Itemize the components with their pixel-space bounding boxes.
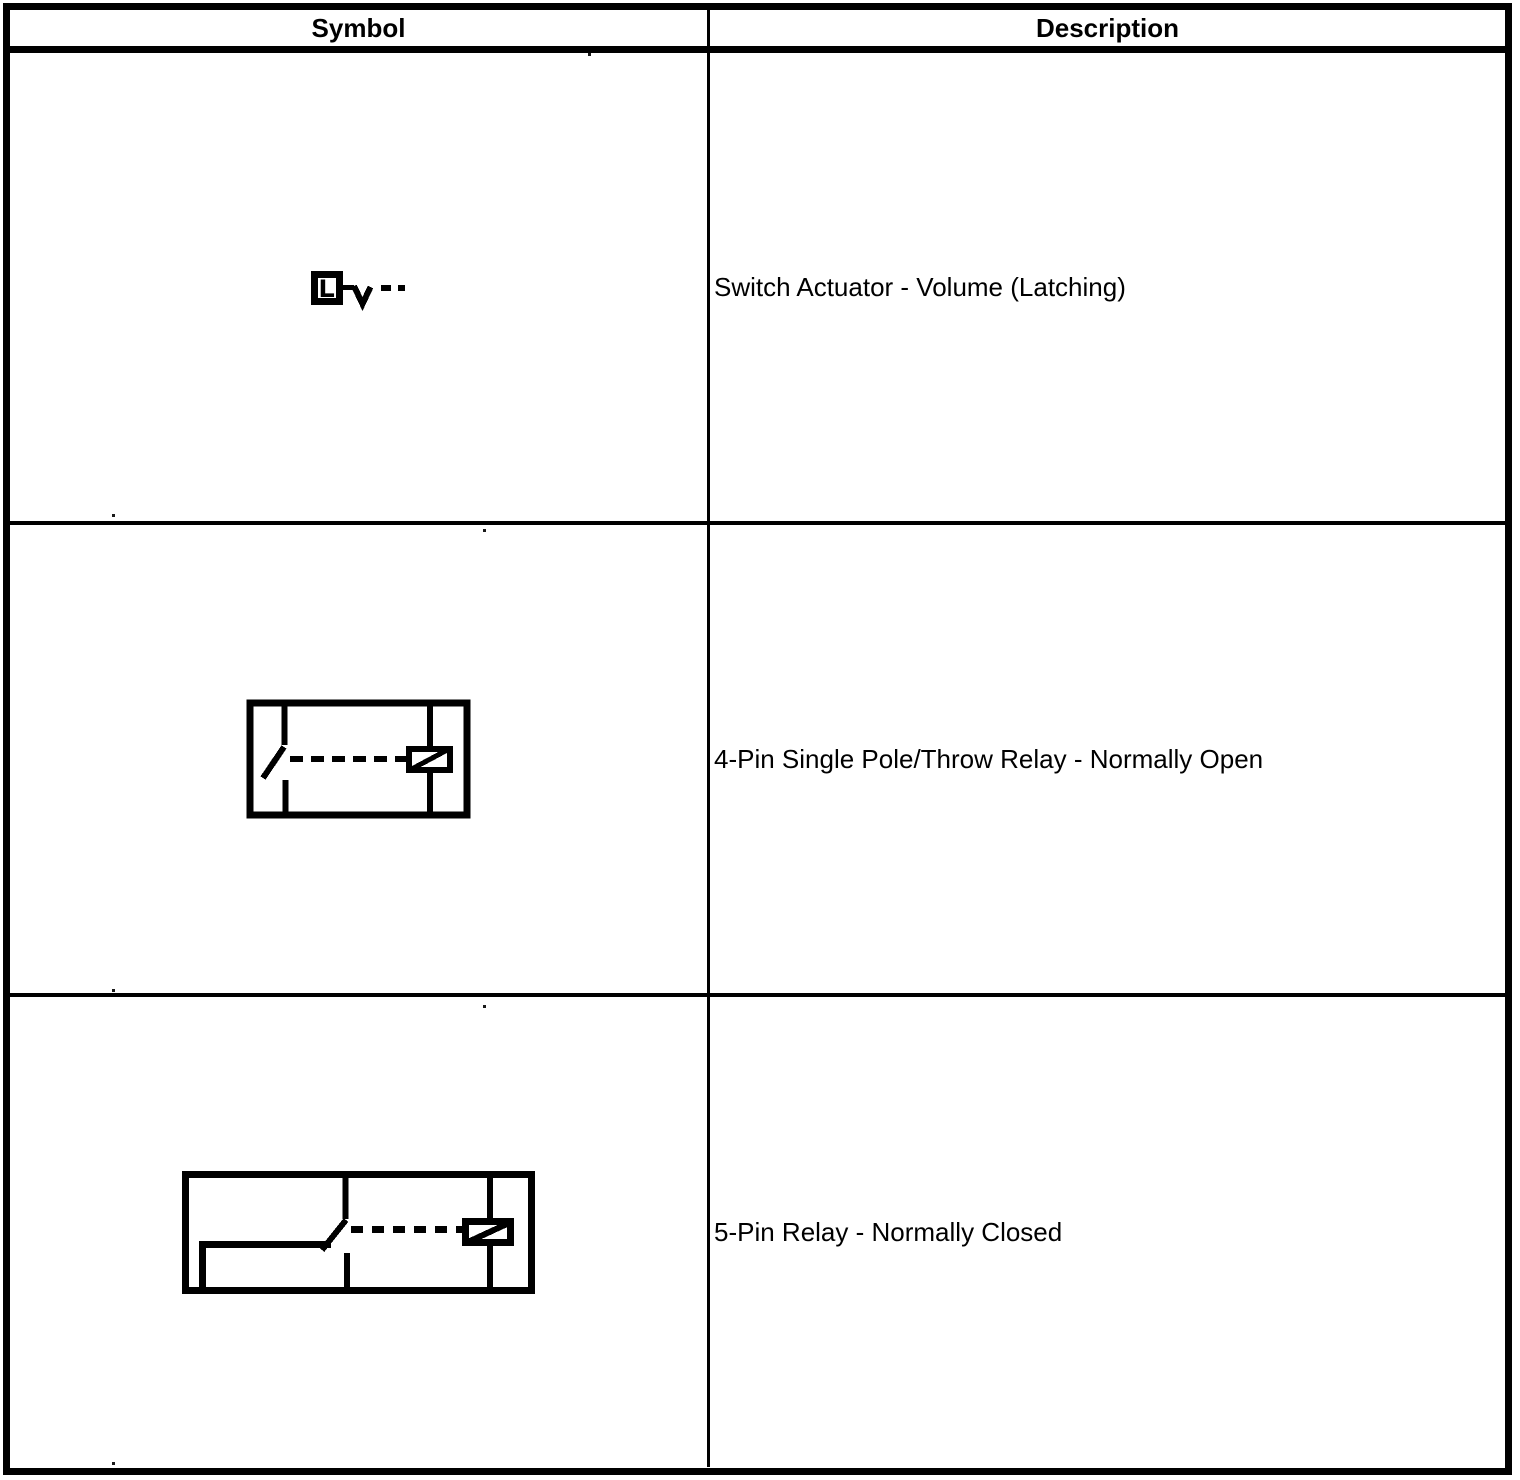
table-row: L Switch Actuator - Volume (Latching) bbox=[10, 53, 1505, 525]
description-cell: Switch Actuator - Volume (Latching) bbox=[710, 53, 1505, 521]
scan-speck bbox=[483, 529, 486, 532]
symbol-column-header: Symbol bbox=[10, 10, 710, 46]
symbol-cell: L bbox=[10, 53, 710, 521]
switch-actuator-volume-latching-icon: L bbox=[301, 260, 416, 315]
table-row: 4-Pin Single Pole/Throw Relay - Normally… bbox=[10, 525, 1505, 997]
scan-speck bbox=[112, 989, 115, 992]
description-text: Switch Actuator - Volume (Latching) bbox=[714, 272, 1126, 303]
scan-speck bbox=[112, 514, 115, 517]
description-cell: 4-Pin Single Pole/Throw Relay - Normally… bbox=[710, 525, 1505, 993]
relay-5pin-normally-closed-icon bbox=[176, 1165, 541, 1300]
scan-speck bbox=[483, 1005, 486, 1008]
relay-4pin-normally-open-icon bbox=[241, 697, 476, 822]
symbol-header-label: Symbol bbox=[312, 13, 406, 44]
symbol-legend-table: Symbol Description L Switch Actuator bbox=[3, 3, 1512, 1475]
description-text: 4-Pin Single Pole/Throw Relay - Normally… bbox=[714, 744, 1263, 775]
description-header-label: Description bbox=[1036, 13, 1179, 44]
description-column-header: Description bbox=[710, 10, 1505, 46]
actuator-letter: L bbox=[320, 275, 335, 302]
symbol-cell bbox=[10, 997, 710, 1467]
description-cell: 5-Pin Relay - Normally Closed bbox=[710, 997, 1505, 1467]
table-row: 5-Pin Relay - Normally Closed bbox=[10, 997, 1505, 1467]
scan-speck bbox=[112, 1462, 115, 1465]
symbol-cell bbox=[10, 525, 710, 993]
description-text: 5-Pin Relay - Normally Closed bbox=[714, 1217, 1062, 1248]
table-header-row: Symbol Description bbox=[10, 10, 1505, 53]
scan-speck bbox=[588, 53, 591, 56]
